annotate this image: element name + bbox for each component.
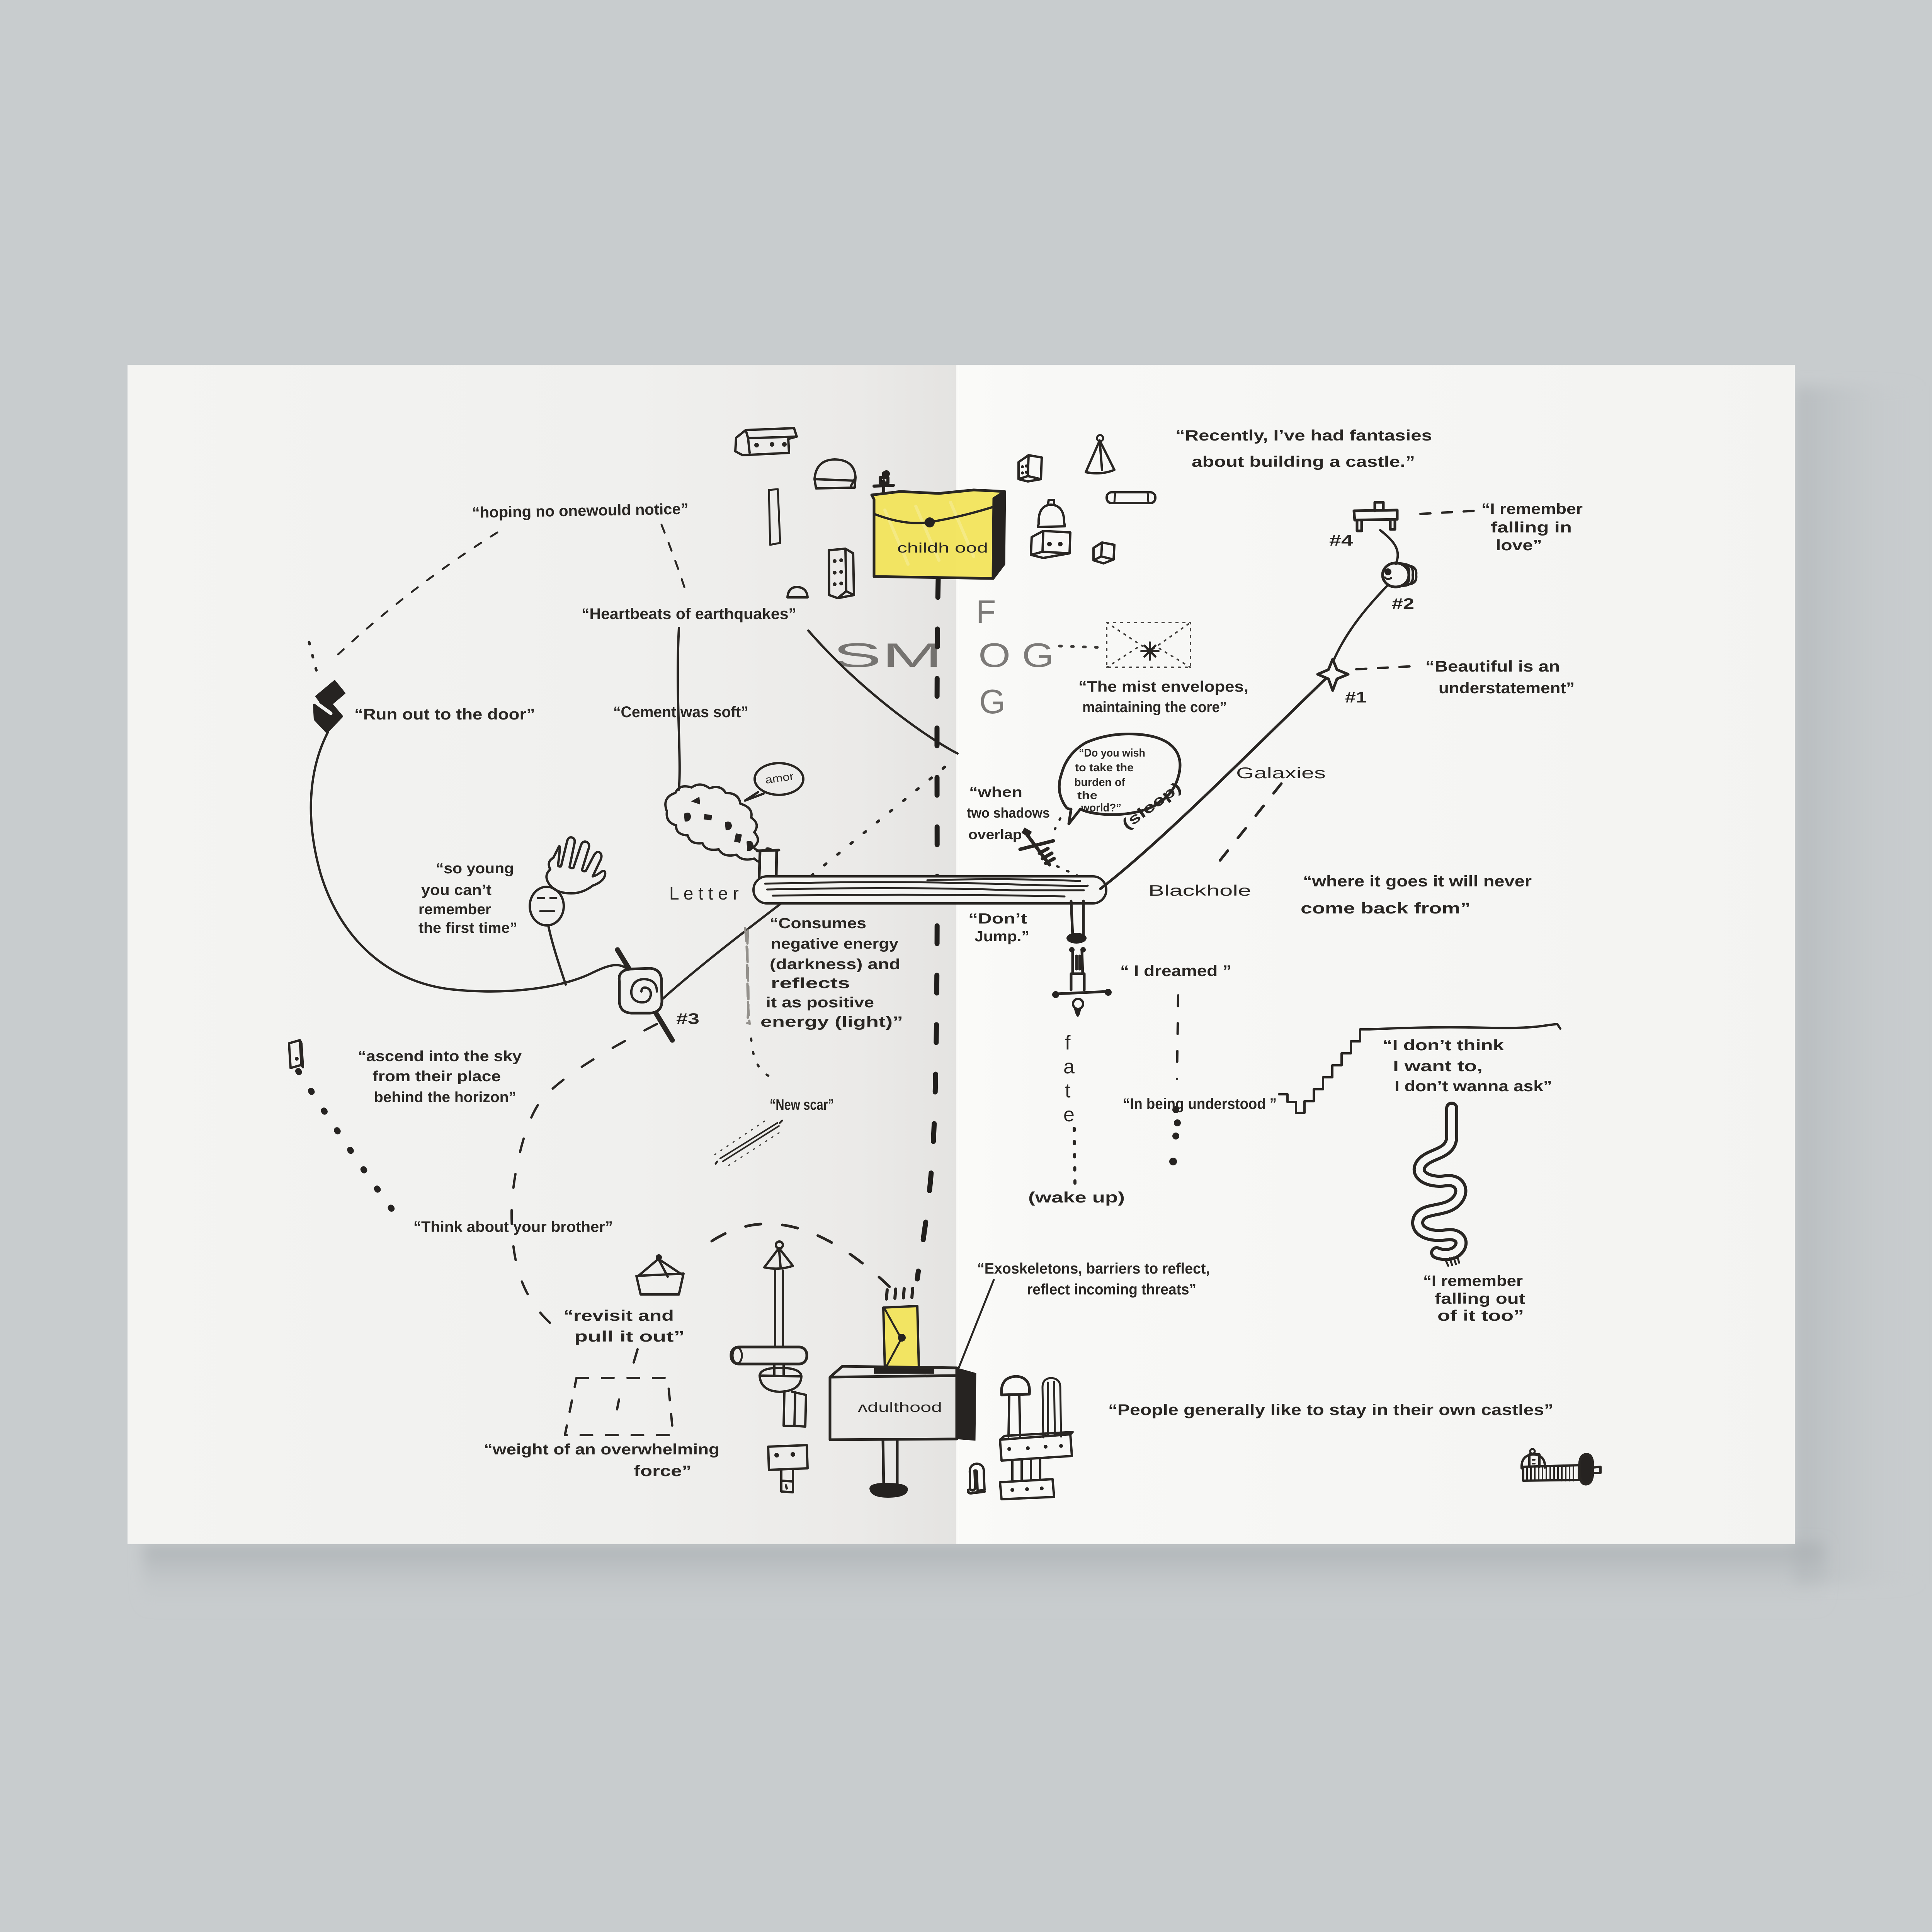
svg-text:the: the — [1077, 789, 1097, 802]
svg-text:G: G — [979, 682, 1005, 721]
svg-text:I want to,: I want to, — [1393, 1058, 1483, 1075]
svg-text:“In being understood ”: “In being understood ” — [1123, 1095, 1277, 1112]
svg-text:behind the horizon”: behind the horizon” — [374, 1089, 516, 1105]
svg-text:pull it out”: pull it out” — [574, 1328, 685, 1345]
svg-text:Galaxies: Galaxies — [1236, 765, 1326, 782]
svg-text:energy (light)”: energy (light)” — [760, 1014, 903, 1030]
svg-text:reflects: reflects — [771, 975, 850, 992]
svg-text:“Recently, I’ve had fantasies: “Recently, I’ve had fantasies — [1175, 427, 1432, 444]
svg-text:“New scar”: “New scar” — [770, 1097, 834, 1113]
svg-text:come back from”: come back from” — [1301, 900, 1471, 917]
svg-text:“Do you wish: “Do you wish — [1079, 747, 1145, 759]
svg-text:#2: #2 — [1392, 595, 1414, 612]
svg-text:Blackhole: Blackhole — [1148, 883, 1251, 899]
svg-text:force”: force” — [634, 1463, 692, 1480]
svg-text:#1: #1 — [1345, 689, 1367, 706]
svg-text:it as positive: it as positive — [766, 995, 874, 1011]
svg-text:“when: “when — [969, 784, 1022, 800]
svg-text:#4: #4 — [1329, 532, 1354, 549]
svg-text:e: e — [1063, 1104, 1075, 1126]
svg-text:the first time”: the first time” — [418, 920, 517, 936]
svg-text:“ascend into the sky: “ascend into the sky — [358, 1048, 522, 1065]
svg-text:understatement”: understatement” — [1439, 680, 1575, 697]
svg-text:remember: remember — [418, 901, 491, 918]
svg-text:“I remember: “I remember — [1481, 501, 1583, 517]
svg-text:“weight of an overwhelming: “weight of an overwhelming — [484, 1441, 719, 1458]
svg-text:childh ood: childh ood — [897, 540, 988, 556]
svg-text:burden of: burden of — [1074, 776, 1125, 789]
svg-text:to take the: to take the — [1075, 762, 1134, 774]
svg-text:a: a — [1063, 1056, 1075, 1078]
svg-text:“Don’t: “Don’t — [968, 911, 1027, 927]
svg-text:two shadows: two shadows — [967, 805, 1050, 821]
svg-text:#3: #3 — [676, 1010, 699, 1027]
svg-text:Jump.”: Jump.” — [975, 929, 1029, 945]
svg-text:“ I dreamed ”: “ I dreamed ” — [1120, 963, 1231, 980]
svg-text:overlap”: overlap” — [968, 827, 1029, 842]
svg-text:“Cement was soft”: “Cement was soft” — [613, 704, 748, 721]
svg-text:SM: SM — [833, 636, 943, 674]
svg-text:“Think about your brother”: “Think about your brother” — [413, 1219, 613, 1235]
svg-text:(wake up): (wake up) — [1028, 1189, 1125, 1206]
svg-text:“where it goes it will never: “where it goes it will never — [1303, 873, 1532, 890]
svg-text:“Heartbeats of earthquakes”: “Heartbeats of earthquakes” — [582, 605, 796, 622]
svg-text:“revisit and: “revisit and — [563, 1308, 674, 1324]
svg-text:“Exoskeletons, barriers to ref: “Exoskeletons, barriers to reflect, — [977, 1260, 1210, 1277]
svg-text:you can’t: you can’t — [421, 882, 492, 898]
svg-text:F: F — [976, 594, 996, 630]
svg-text:t: t — [1065, 1080, 1071, 1102]
svg-text:f: f — [1065, 1032, 1071, 1054]
svg-text:“I don’t think: “I don’t think — [1383, 1037, 1504, 1054]
svg-text:O G: O G — [978, 636, 1054, 674]
svg-text:“The mist envelopes,: “The mist envelopes, — [1078, 679, 1248, 695]
svg-text:from their place: from their place — [372, 1068, 501, 1085]
svg-text:“People generally like to stay: “People generally like to stay in their … — [1108, 1401, 1553, 1418]
svg-text:“I remember: “I remember — [1423, 1273, 1523, 1289]
svg-text:about building a castle.”: about building a castle.” — [1192, 454, 1415, 470]
svg-text:I don’t wanna ask”: I don’t wanna ask” — [1395, 1078, 1552, 1095]
svg-text:falling in: falling in — [1491, 519, 1572, 536]
svg-text:love”: love” — [1496, 537, 1542, 554]
svg-text:“Consumes: “Consumes — [770, 915, 866, 932]
svg-text:“Beautiful is an: “Beautiful is an — [1425, 658, 1560, 675]
svg-text:“Run out to the door”: “Run out to the door” — [354, 706, 535, 723]
svg-text:ʌdulthood: ʌdulthood — [858, 1399, 942, 1415]
svg-text:(darkness) and: (darkness) and — [770, 956, 900, 973]
svg-text:of it too”: of it too” — [1437, 1308, 1524, 1324]
svg-text:maintaining the core”: maintaining the core” — [1082, 699, 1227, 716]
svg-text:reflect incoming threats”: reflect incoming threats” — [1027, 1281, 1196, 1298]
svg-text:world?”: world?” — [1081, 802, 1121, 814]
svg-text:L e t t e r: L e t t e r — [669, 883, 739, 903]
svg-text:falling out: falling out — [1435, 1291, 1525, 1307]
svg-text:“so young: “so young — [436, 861, 514, 877]
svg-text:negative energy: negative energy — [771, 936, 898, 952]
